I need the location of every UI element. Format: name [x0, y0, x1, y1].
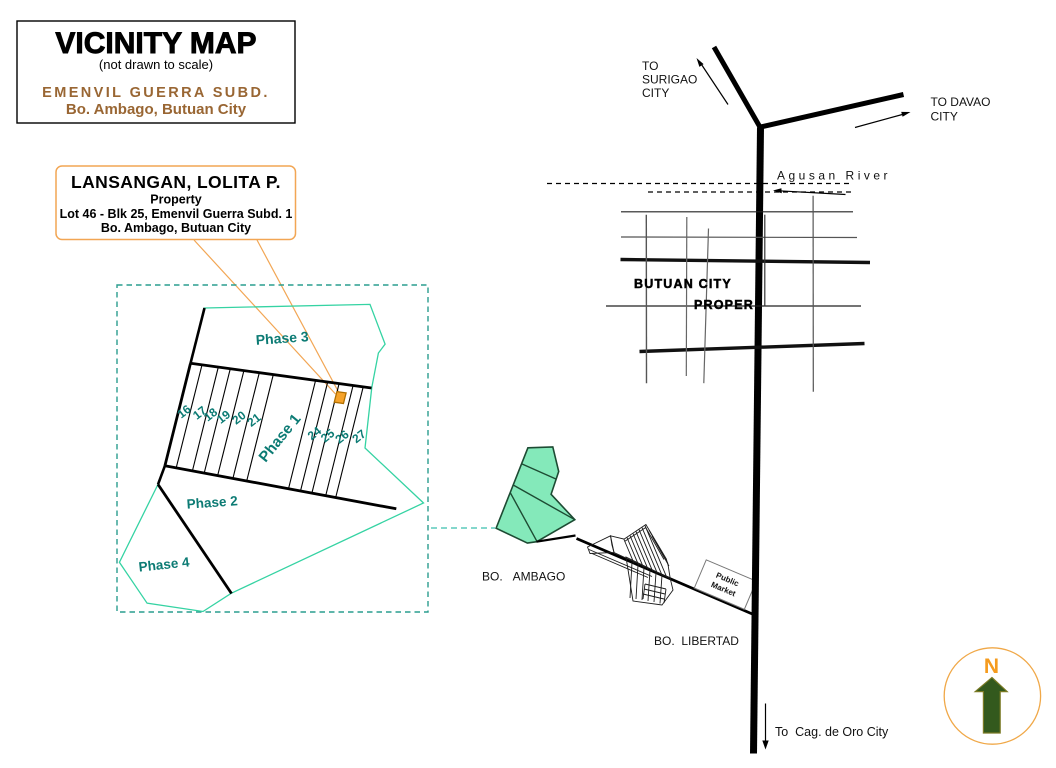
svg-text:CITY: CITY	[642, 86, 669, 100]
svg-text:VICINITY MAP: VICINITY MAP	[55, 27, 256, 60]
svg-text:BO. AMBAGO: BO. AMBAGO	[482, 570, 565, 584]
svg-text:Agusan River: Agusan River	[777, 169, 891, 183]
svg-text:Bo. Ambago, Butuan City: Bo. Ambago, Butuan City	[101, 221, 251, 235]
svg-text:(not drawn to scale): (not drawn to scale)	[99, 57, 213, 72]
svg-text:Lot 46 - Blk 25, Emenvil Guerr: Lot 46 - Blk 25, Emenvil Guerra Subd. 1	[60, 207, 293, 221]
svg-text:LANSANGAN, LOLITA P.: LANSANGAN, LOLITA P.	[71, 172, 281, 192]
svg-text:BO. LIBERTAD: BO. LIBERTAD	[654, 634, 739, 648]
svg-text:TO DAVAO: TO DAVAO	[931, 95, 991, 109]
svg-text:SURIGAO: SURIGAO	[642, 73, 697, 87]
svg-text:Property: Property	[150, 193, 201, 207]
svg-text:Bo. Ambago, Butuan City: Bo. Ambago, Butuan City	[66, 101, 247, 118]
svg-text:EMENVIL GUERRA SUBD.: EMENVIL GUERRA SUBD.	[42, 85, 270, 101]
svg-text:To Cag. de Oro City: To Cag. de Oro City	[775, 725, 889, 739]
svg-text:BUTUAN CITY: BUTUAN CITY	[634, 277, 732, 291]
svg-text:PROPER: PROPER	[694, 298, 754, 312]
svg-text:CITY: CITY	[931, 110, 958, 124]
svg-text:N: N	[984, 655, 999, 678]
svg-text:TO: TO	[642, 59, 658, 73]
